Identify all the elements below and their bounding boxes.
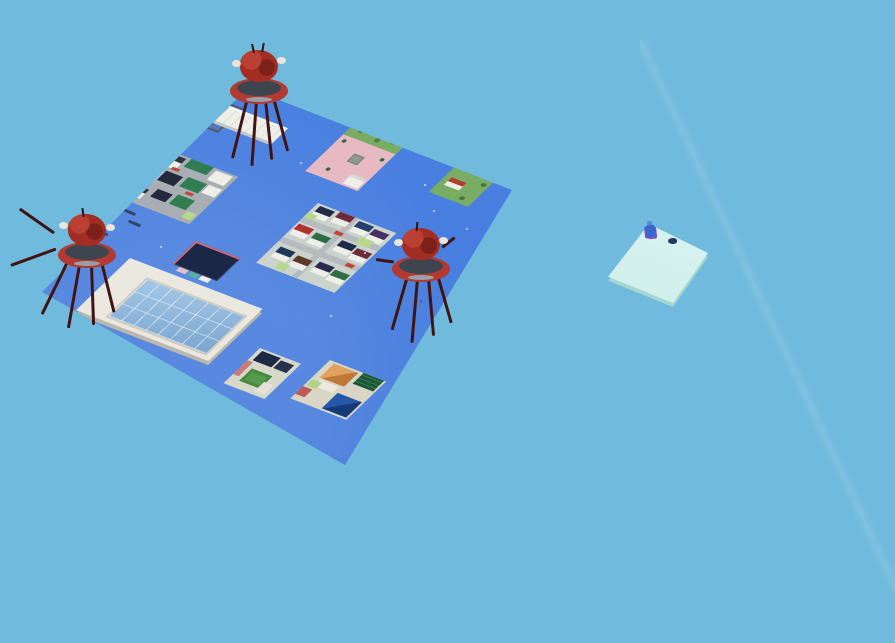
hedge (458, 196, 466, 201)
crab-leg (391, 276, 409, 331)
crab-rod (10, 248, 56, 267)
crab-boss-west[interactable] (52, 212, 122, 332)
crab-leg (410, 279, 418, 343)
crab-body (240, 50, 278, 82)
window-strip (128, 183, 149, 194)
dark-green-roof (352, 373, 384, 392)
crab-claw (59, 222, 68, 229)
house (288, 255, 313, 271)
crab-claw (232, 60, 241, 67)
teal-pavilion-roof (462, 159, 497, 179)
speck (433, 210, 435, 212)
crab-saucer-lip (408, 275, 434, 280)
pink-marking (447, 155, 458, 162)
red-marking (426, 145, 440, 153)
crosswalk (184, 191, 194, 196)
speck (330, 315, 332, 317)
shop-building (123, 183, 149, 199)
grass-patch (109, 189, 125, 198)
machine-block (191, 110, 207, 120)
hedge (466, 156, 474, 161)
crab-body (68, 214, 106, 246)
crab-boss-north[interactable] (224, 48, 294, 168)
crab-antenna (81, 208, 84, 217)
player-character[interactable] (643, 220, 659, 242)
purple-roof-house-tile[interactable] (421, 127, 484, 166)
courtyard-tile[interactable] (223, 348, 301, 399)
crab-claw (394, 239, 403, 246)
speck (364, 252, 366, 254)
green-roof-building (169, 194, 195, 210)
crab-leg (231, 98, 248, 159)
crab-leg (67, 265, 81, 328)
residential-grid[interactable] (256, 203, 396, 293)
speck (466, 228, 468, 230)
crab-saucer-top (399, 258, 443, 274)
crab-saucer-lip (74, 261, 100, 266)
purple-roof-house (438, 131, 472, 152)
crosswalk (171, 167, 181, 172)
glass-roof (105, 277, 247, 356)
speck (352, 103, 354, 105)
dark-building (150, 189, 173, 202)
crab-boss-east[interactable] (386, 226, 456, 346)
crab-body (402, 228, 440, 260)
game-scene (0, 0, 895, 643)
speck (232, 332, 234, 334)
hedge (480, 183, 488, 188)
crab-claw (439, 237, 448, 244)
small-critter[interactable] (668, 238, 677, 244)
crab-leg (272, 98, 289, 152)
white-store (342, 174, 366, 189)
green-roof-building (184, 159, 214, 175)
crab-leg (90, 265, 95, 325)
dock-plank (112, 194, 124, 201)
shop-building (151, 150, 186, 170)
gazebo (347, 154, 365, 166)
shop-building (207, 170, 233, 186)
crab-saucer-top (237, 80, 281, 96)
crab-saucer-top (65, 244, 109, 260)
dark-tower[interactable] (172, 241, 241, 281)
red-roof-hut (444, 177, 467, 190)
plaza-park[interactable] (305, 122, 408, 191)
crab-leg (250, 100, 257, 166)
speck (160, 246, 162, 248)
crab-claw (277, 57, 286, 64)
dock-plank (120, 207, 136, 216)
blue-pyramid-roof (322, 393, 362, 418)
crab-leg (436, 275, 452, 324)
speck (424, 184, 426, 186)
player-body (645, 225, 655, 238)
speck (356, 105, 358, 107)
tree (379, 158, 386, 162)
crane-post (195, 99, 216, 118)
hedge-garden (343, 122, 408, 154)
tree (341, 139, 348, 143)
temple-roofs-tile[interactable] (290, 360, 386, 420)
grass-patch (181, 211, 197, 221)
crab-leg (41, 261, 69, 314)
crab-leg (264, 100, 273, 160)
crab-leg (427, 278, 435, 336)
crab-saucer-lip (246, 97, 272, 102)
tree (325, 167, 332, 171)
dark-building (157, 171, 183, 187)
crab-rod (19, 208, 55, 234)
garden-pavilion-tile[interactable] (429, 152, 509, 207)
window-strip (157, 150, 186, 164)
crab-leg (100, 262, 115, 313)
speck (333, 458, 335, 460)
speck (300, 162, 302, 164)
crab-claw (106, 224, 115, 231)
red-patch (295, 386, 312, 397)
sky-light-streak (640, 40, 895, 640)
dock-plank (128, 220, 141, 228)
canopy-building (130, 164, 164, 185)
trim-strip (198, 275, 211, 282)
